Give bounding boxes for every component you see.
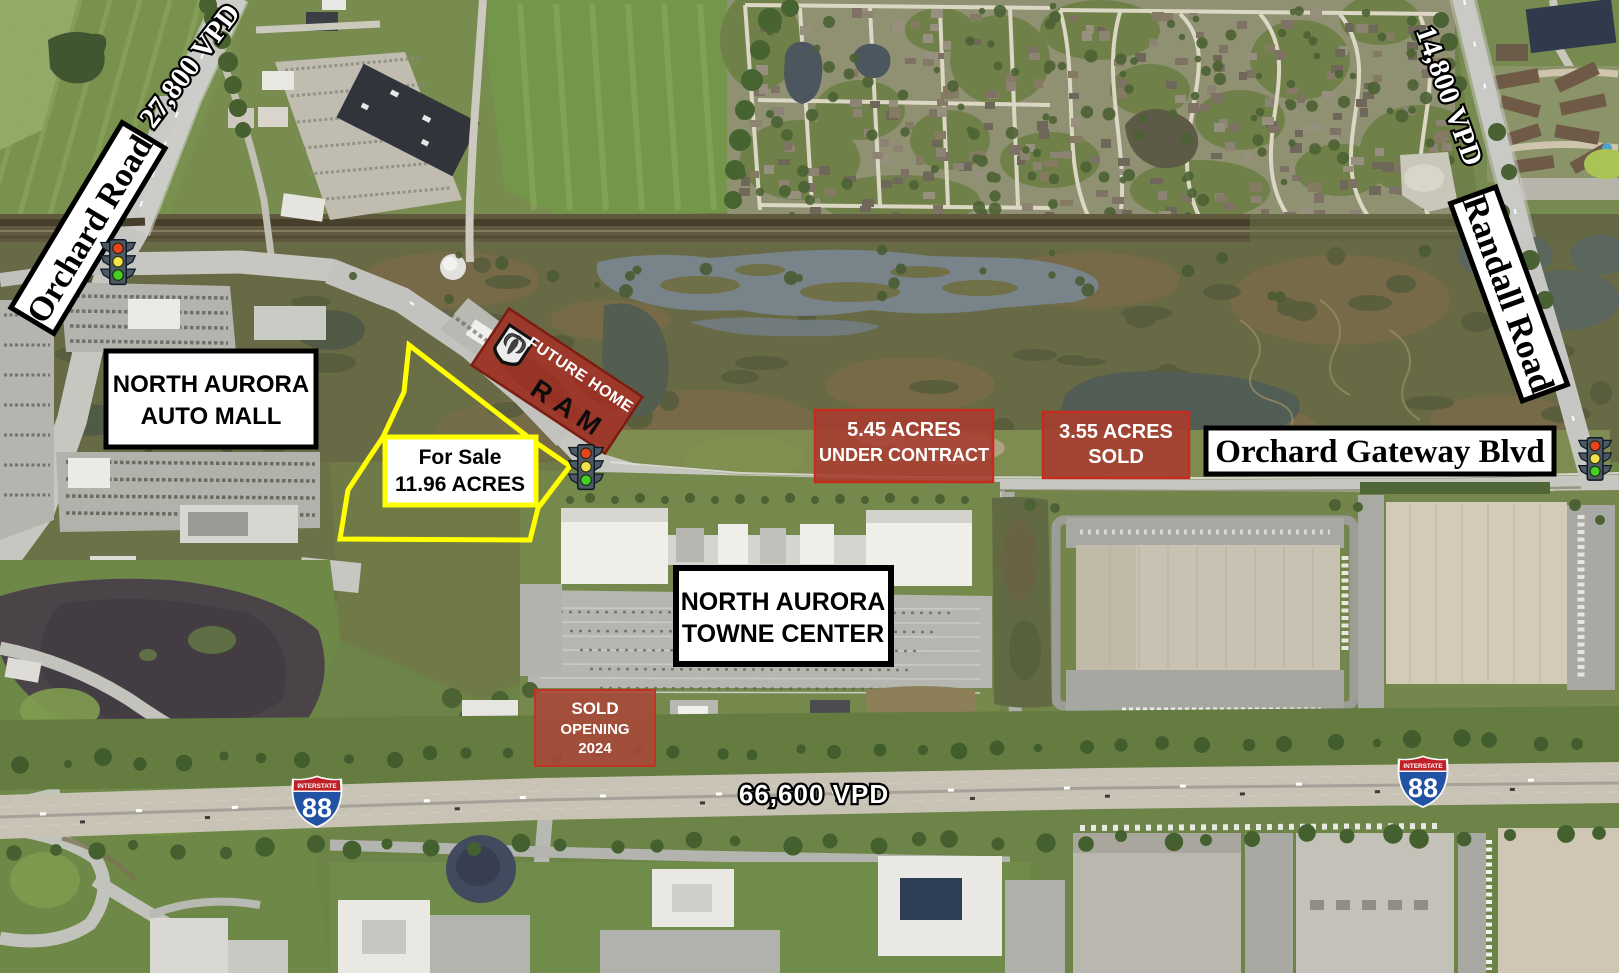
svg-text:2024: 2024 <box>578 740 612 757</box>
svg-text:AUTO MALL: AUTO MALL <box>141 403 282 430</box>
svg-text:TOWNE CENTER: TOWNE CENTER <box>682 620 884 648</box>
svg-text:5.45 ACRES: 5.45 ACRES <box>847 419 961 441</box>
svg-text:Orchard Gateway Blvd: Orchard Gateway Blvd <box>1215 434 1544 470</box>
svg-text:66,600 VPD: 66,600 VPD <box>739 779 889 809</box>
svg-text:SOLD: SOLD <box>571 699 618 718</box>
svg-text:NORTH AURORA: NORTH AURORA <box>113 371 309 398</box>
svg-text:For Sale: For Sale <box>419 446 502 469</box>
svg-text:NORTH AURORA: NORTH AURORA <box>681 588 886 616</box>
svg-text:SOLD: SOLD <box>1088 446 1144 468</box>
svg-text:OPENING: OPENING <box>560 721 629 738</box>
svg-text:3.55 ACRES: 3.55 ACRES <box>1059 421 1173 443</box>
svg-text:UNDER CONTRACT: UNDER CONTRACT <box>819 445 989 465</box>
svg-text:11.96 ACRES: 11.96 ACRES <box>395 473 525 496</box>
